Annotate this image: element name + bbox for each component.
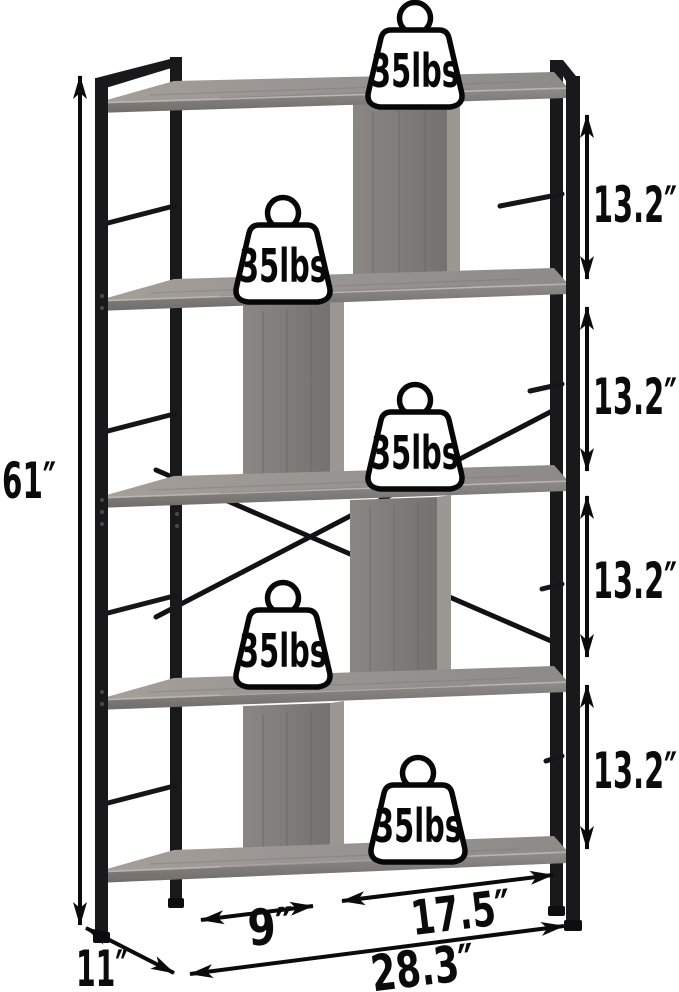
shelf-0: [96, 72, 568, 113]
height-dimension: 61″: [2, 76, 80, 925]
gap-label: 13.2″: [593, 552, 677, 610]
diagram-canvas: 35lbs 35lbs 35lbs 35lbs 35lbs 61″ 13.2″ …: [0, 0, 679, 992]
divider-edge: [447, 98, 460, 287]
gap-label: 13.2″: [593, 176, 677, 234]
divider-edge: [437, 495, 451, 691]
total-width-label: 28.3″: [368, 933, 478, 992]
front-right-post: [566, 76, 580, 922]
shelf-gap-dimension-2: 13.2″: [587, 496, 677, 657]
weight-badge-label: 35lbs: [374, 799, 462, 853]
shelf-gap-dimension-0: 13.2″: [587, 115, 677, 279]
front-left-post: [95, 78, 108, 935]
left-rung: [104, 786, 174, 804]
weight-badge-label: 35lbs: [371, 44, 459, 98]
divider-edge: [330, 298, 344, 492]
front-right-foot: [564, 920, 582, 931]
top-left-rail: [96, 57, 178, 87]
weight-badge-label: 35lbs: [239, 624, 327, 678]
depth-label: 11″: [76, 940, 128, 992]
weight-badge-0: 35lbs: [368, 3, 462, 108]
gap-label: 13.2″: [593, 742, 677, 800]
weight-badge-3: 35lbs: [236, 583, 330, 688]
depth-dimension: 11″: [76, 928, 174, 992]
weight-badge-label: 35lbs: [371, 426, 459, 480]
divider-face: [353, 100, 447, 291]
shelf-gap-dimension-3: 13.2″: [587, 685, 677, 849]
cubby-width-label: 9″: [246, 897, 296, 958]
shelf-2: [96, 465, 568, 508]
height-label: 61″: [2, 452, 56, 510]
bookshelf-dimension-diagram: 35lbs 35lbs 35lbs 35lbs 35lbs 61″ 13.2″ …: [0, 0, 679, 992]
divider-1: [243, 298, 344, 495]
left-rung: [104, 414, 174, 432]
weight-badge-1: 35lbs: [236, 198, 330, 303]
left-rung: [104, 206, 174, 224]
weight-badge-label: 35lbs: [239, 239, 327, 293]
back-left-foot: [168, 898, 184, 908]
divider-0: [353, 98, 460, 291]
divider-2: [350, 495, 451, 694]
weight-badge-4: 35lbs: [371, 758, 465, 863]
shelf-gap-dimension-1: 13.2″: [587, 307, 677, 471]
gap-label: 13.2″: [593, 368, 677, 426]
back-right-foot: [548, 906, 565, 916]
cubby-width-dimension: 9″: [201, 897, 313, 958]
divider-3: [243, 701, 344, 869]
weight-badge-2: 35lbs: [368, 385, 462, 490]
total-width-dimension: 28.3″: [190, 926, 564, 992]
divider-edge: [330, 701, 344, 866]
